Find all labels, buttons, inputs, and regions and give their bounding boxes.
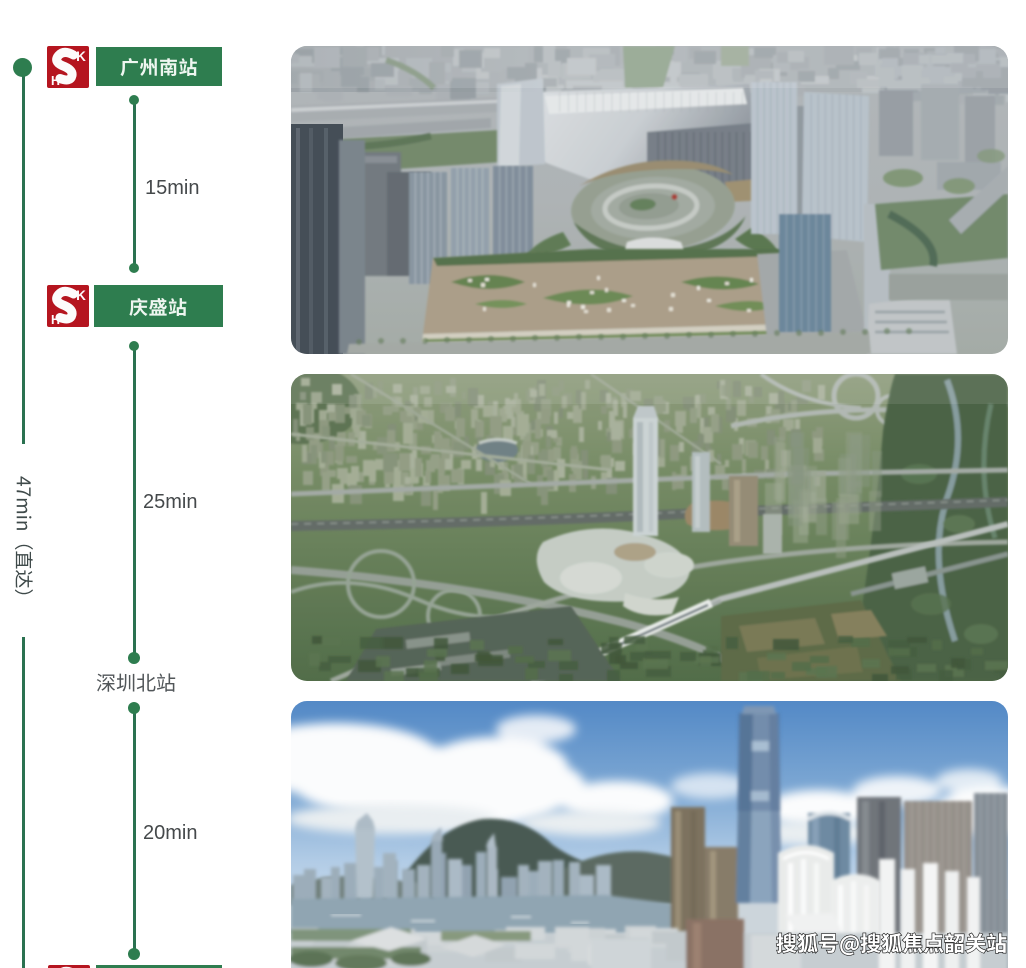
svg-text:K: K (76, 288, 86, 303)
svg-text:H: H (51, 74, 60, 88)
svg-text:K: K (76, 49, 86, 64)
svg-text:H: H (51, 313, 60, 327)
